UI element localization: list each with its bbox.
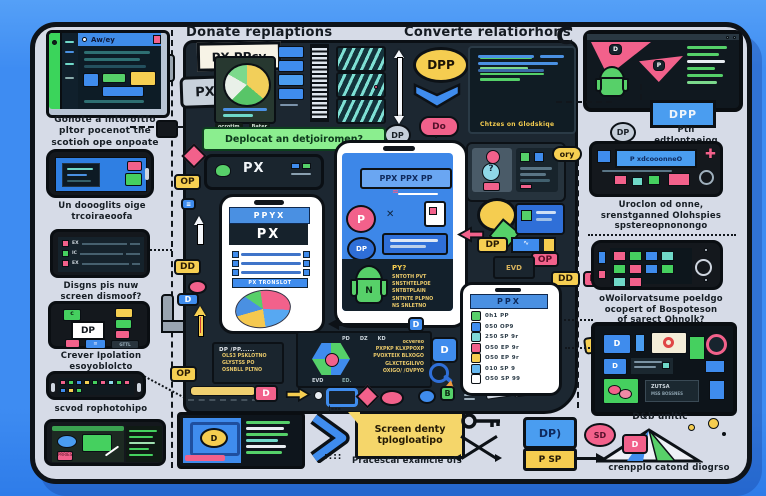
green-key: c [63, 309, 81, 321]
arrow-line [574, 457, 598, 460]
ppx-label: PPX PPX PP [360, 168, 452, 189]
connector-dash [556, 101, 612, 103]
p-label: P [653, 60, 665, 71]
blue-key: ≡ [85, 339, 106, 349]
barcode-strip [310, 44, 329, 122]
psp-unit-label: P SP [523, 448, 577, 471]
op-chip: OP [170, 366, 197, 382]
d-chip: D [177, 293, 199, 306]
dp-chip: DP [477, 237, 508, 253]
list-item: O50 SP 99 [471, 375, 553, 384]
caption-right-4: D&b unltic [612, 412, 708, 423]
evd-box: EVD [493, 256, 535, 279]
dots-decoration: :::: [324, 452, 342, 462]
d-label: D [609, 44, 622, 55]
blue-mini-card [515, 203, 565, 235]
x-icon: ✕ [386, 209, 394, 220]
pie-card [214, 56, 276, 124]
caption-left-1: Gonote a intoroftfopltor pocenot thescot… [38, 115, 172, 149]
code-caption: Chtzes on Glodskiqe [480, 121, 554, 128]
device-app-grid [591, 240, 723, 290]
browser-window: Aw/ey [46, 30, 170, 118]
pink-chip [483, 182, 500, 191]
phone-dp-chips: c DP ≡ GTTL [48, 301, 150, 349]
plus-icon: ✚ [705, 147, 716, 162]
pencil-icon [190, 386, 256, 396]
heading-right: Converte relatiorhons [404, 25, 571, 40]
phone-header: PPYX [229, 207, 310, 224]
dark-key: GTTL [111, 340, 139, 349]
teal-screen [336, 98, 386, 124]
app-tile-avatars [603, 378, 639, 404]
app-tile-d: D [603, 334, 631, 354]
gear-icon [699, 170, 714, 185]
d-button: D [431, 337, 458, 363]
code-card-left: DP /PP...... OLS3 PSKLOTNO GLYSTSS PO OS… [212, 342, 284, 384]
dpp-tag: DPP [650, 100, 716, 128]
density-note: Screen denty tplogloatipo [355, 411, 465, 459]
b-key-icon: B [440, 386, 455, 401]
green-chip [125, 173, 142, 186]
code-panel: Chtzes on Glodskiqe [468, 46, 576, 134]
phone-px-bar: PX [229, 224, 308, 245]
ory-pill: ory [552, 146, 582, 162]
p-ellipse: D [200, 428, 228, 448]
bottom-left-card: D [177, 412, 305, 469]
dp-label: DP [71, 321, 105, 340]
main-phone: PPYX PX PX TRONSLOT [219, 194, 325, 334]
code-title: PY? [392, 264, 406, 272]
phone-icon-grid [46, 371, 146, 400]
caption-left-5: scvod rophotohipo [40, 404, 162, 415]
chevron-down-icon [412, 82, 462, 110]
blue-dot-icon [418, 389, 436, 404]
phone-button [51, 383, 55, 392]
dots-decoration: ¦--- [328, 404, 341, 413]
ppx-list-phone: PPX 0h1 PP 050 OP9 250 SP 9r O50 EP 9r O… [460, 282, 562, 396]
dd-chip: DD [174, 259, 201, 275]
pink-key [65, 339, 80, 348]
arrow-right-icon [285, 386, 311, 403]
pink-key [115, 330, 130, 339]
pie-chart [233, 286, 294, 331]
note-tail [348, 412, 360, 426]
heading-left: Donate replaptions [186, 25, 332, 40]
list-row-highlight: PX TRONSLOT [232, 278, 308, 288]
squiggle-icon: ≈ [392, 187, 399, 196]
back-arrow [338, 323, 416, 326]
list-item: 0h1 PP [471, 312, 553, 321]
list-item: O50 EP 9r [471, 343, 553, 352]
mini-tile [424, 201, 446, 227]
blue-list-column [278, 46, 304, 120]
list-item: O50 EP 9r [471, 354, 553, 363]
content-tile-blue [83, 73, 99, 87]
browser-dot-icon [82, 37, 87, 42]
caption-bottom: Pracescal examcie ofs [350, 456, 464, 467]
key-icon [460, 410, 504, 436]
app-tile-green [689, 336, 705, 360]
app-tile-d: D [603, 358, 627, 375]
caption-right-2: Uroclon od onne,srenstganned Olohspiessp… [586, 200, 736, 232]
px-titlebar: PX [204, 154, 324, 190]
browser-close-icon [153, 35, 161, 44]
browser-green-strip [49, 33, 62, 109]
pink-dot-icon [486, 150, 500, 164]
blue-ellipse [57, 435, 77, 448]
teal-screen [336, 72, 386, 98]
list-row [232, 260, 310, 266]
op-chip: OP [174, 174, 201, 190]
tablet: D D ZUTSA MSS BOSSNES [591, 322, 737, 416]
pink-chip [127, 161, 142, 171]
settings-bar: P xdcooonneO [615, 149, 697, 168]
blue-mini-icon: ≡ [181, 198, 196, 210]
phone-notch [383, 146, 415, 151]
op-pink-chip: OP [531, 252, 559, 267]
chat-rect [382, 233, 448, 255]
mini-screens-card: ? [466, 142, 566, 202]
d-tag: D [408, 317, 424, 332]
phone-button [145, 168, 149, 180]
progress-bar: ∿ [511, 237, 556, 253]
android-robot-icon [595, 66, 625, 98]
caption-left-2: Un doooglits oigetrcoiraeoofa [40, 201, 164, 222]
app-tile-pink-ring [706, 334, 727, 355]
d-speech-bubble: D [622, 434, 648, 454]
pink-chip: PRRIES [57, 451, 73, 461]
arrow-up-icon [192, 216, 206, 244]
phone-code-screen: PRRIES [44, 419, 166, 466]
toolbar-dashes [188, 399, 258, 401]
double-arrow-icon [393, 50, 405, 124]
phone-blue-demo: PPX PPX PP ≈ P ✕ DP N PY? SNTOTH PV [334, 140, 468, 328]
d-speech-bubble: D [254, 385, 278, 402]
dp-grey-circle: DP [610, 122, 636, 143]
list-row [232, 251, 310, 257]
android-robot-icon: N [350, 265, 384, 307]
browser-content [78, 46, 161, 109]
list-item: 050 OP9 [471, 322, 553, 331]
phone-list-rows: EX IC EX [50, 229, 150, 278]
home-button [695, 259, 712, 276]
green-key [115, 319, 132, 329]
tablet-label-box: ZUTSA MSS BOSSNES [645, 380, 699, 402]
list-item: 250 SP 9r [471, 333, 553, 342]
teal-screen [336, 46, 386, 72]
phone-blue-screen [46, 149, 154, 198]
pink-ellipse-icon [380, 390, 404, 406]
content-tile-yellow [130, 71, 156, 86]
pink-dot-icon [188, 280, 207, 294]
ppx-header: PPX [470, 294, 548, 309]
phone-notch [254, 200, 284, 205]
caption-left-4: Crever Ipolationesoyoblolcto [40, 351, 162, 372]
app-tile-cream [651, 332, 687, 354]
browser-title: Aw/ey [91, 36, 115, 44]
dpp-ellipse: DPP [413, 47, 469, 83]
list-item: 010 SP 9 [471, 364, 553, 373]
phone-button [137, 383, 141, 392]
arrow-up-yellow-icon [193, 306, 207, 336]
dp-speech-bubble: DP [347, 237, 376, 261]
arrow-head-left-icon [328, 318, 339, 330]
crossed-arrows-icon [454, 434, 502, 462]
device-settings: P xdcooonneO ✚ [589, 141, 723, 197]
px-title: PX [243, 161, 265, 176]
caption-bottom-right: crenpplo catond diogrso [590, 463, 748, 474]
infographic-stage: Donate replaptions Converte relatiorhons… [0, 0, 766, 496]
phone-notch [495, 288, 521, 292]
caption-left-3: Disgns pis nuwscreen dismoof? [40, 281, 162, 302]
android-blob-icon [215, 164, 231, 177]
hexagon-center-dot [325, 353, 339, 367]
p-speech-bubble: P [346, 205, 376, 233]
magnifier-icon [427, 361, 453, 387]
green-chip [82, 434, 112, 452]
browser-sidebar [62, 33, 78, 109]
c-glyph: C [556, 22, 574, 50]
pie-chart [223, 63, 271, 107]
connector-dash [640, 84, 642, 100]
question-circle-icon: ? [482, 163, 500, 181]
yellow-key [115, 308, 133, 318]
code-card-right: PDDZKD ocvereo PXPKP KLXPPOXP PVOXTEIX B… [296, 331, 432, 388]
dot-icon [314, 391, 323, 400]
content-tile-green [102, 73, 126, 83]
divider-dots [588, 234, 736, 236]
do-pill: Do [419, 116, 459, 137]
content-tile-bluebar [102, 86, 144, 97]
list-row [232, 269, 310, 275]
dp-unit-label: DP) [523, 417, 577, 449]
